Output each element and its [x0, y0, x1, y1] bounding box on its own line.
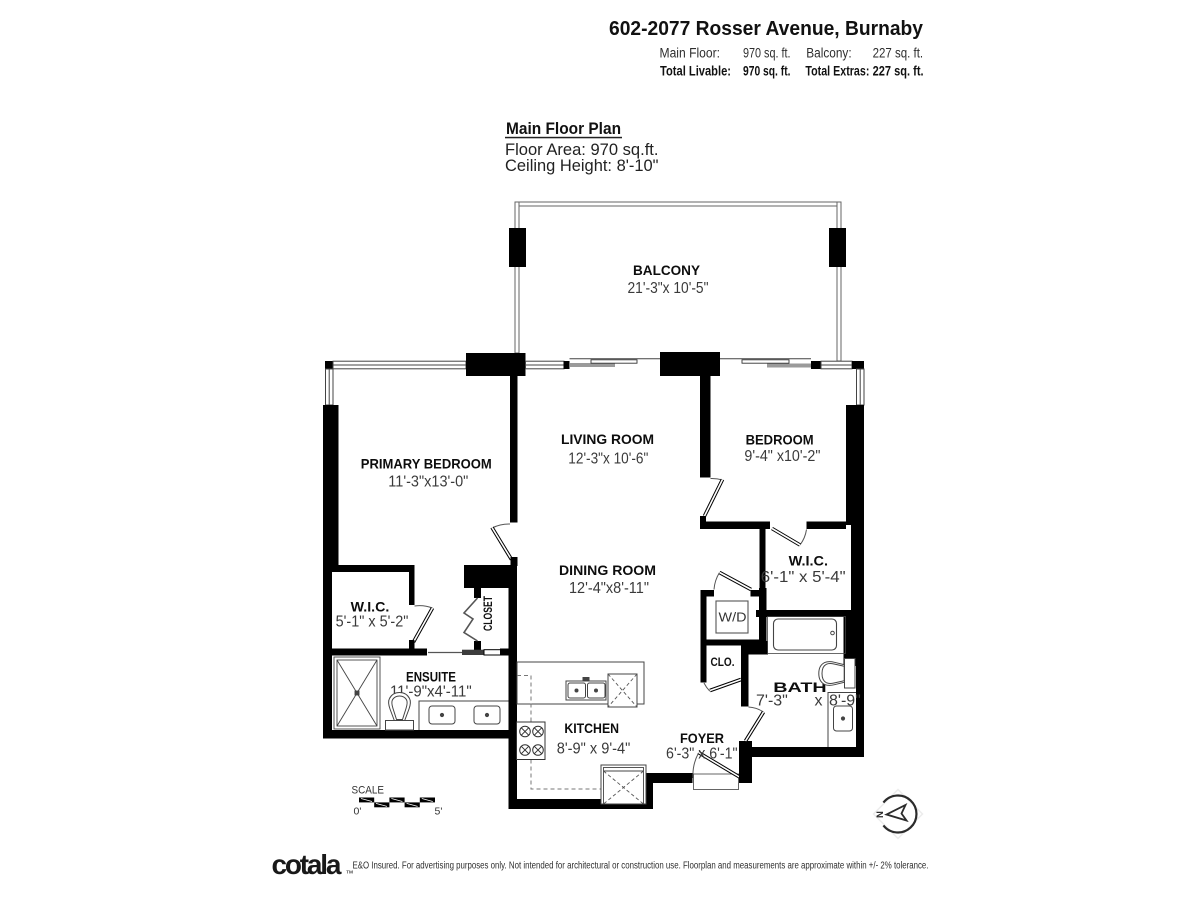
svg-text:8'-9" x 9'-4": 8'-9" x 9'-4": [557, 740, 631, 757]
svg-text:E&O Insured. For advertising p: E&O Insured. For advertising purposes on…: [353, 861, 929, 872]
svg-text:cotala: cotala: [272, 849, 342, 880]
svg-text:Total Livable:: Total Livable:: [660, 64, 731, 79]
svg-text:CLO.: CLO.: [711, 657, 735, 669]
svg-text:LIVING ROOM: LIVING ROOM: [561, 431, 654, 447]
svg-text:Main Floor:: Main Floor:: [660, 46, 721, 61]
svg-text:5': 5': [435, 806, 443, 818]
svg-text:6'-3" x 6'-1": 6'-3" x 6'-1": [666, 745, 738, 762]
svg-text:Balcony:: Balcony:: [806, 46, 851, 61]
svg-text:6'-1" x 5'-4": 6'-1" x 5'-4": [761, 569, 846, 586]
svg-text:227 sq. ft.: 227 sq. ft.: [873, 64, 924, 79]
svg-text:ENSUITE: ENSUITE: [406, 669, 456, 685]
svg-text:Ceiling Height: 8'-10": Ceiling Height: 8'-10": [505, 157, 659, 175]
svg-text:W.I.C.: W.I.C.: [789, 552, 828, 568]
svg-text:970 sq. ft.: 970 sq. ft.: [743, 64, 791, 79]
svg-text:21'-3"x 10'-5": 21'-3"x 10'-5": [628, 280, 709, 297]
svg-text:W.I.C.: W.I.C.: [351, 599, 390, 615]
svg-text:KITCHEN: KITCHEN: [564, 720, 619, 736]
svg-text:FOYER: FOYER: [680, 730, 724, 746]
svg-text:PRIMARY BEDROOM: PRIMARY BEDROOM: [361, 455, 492, 471]
svg-text:11'-3"x13'-0": 11'-3"x13'-0": [388, 474, 468, 491]
svg-text:DINING ROOM: DINING ROOM: [559, 562, 656, 578]
svg-text:12'-4"x8'-11": 12'-4"x8'-11": [569, 580, 649, 597]
svg-text:970 sq. ft.: 970 sq. ft.: [743, 46, 791, 61]
svg-text:5'-1" x 5'-2": 5'-1" x 5'-2": [336, 614, 409, 631]
svg-text:12'-3"x 10'-6": 12'-3"x 10'-6": [568, 450, 648, 467]
svg-text:CLOSET: CLOSET: [483, 596, 495, 631]
svg-text:602-2077 Rosser Avenue, Burnab: 602-2077 Rosser Avenue, Burnaby: [609, 17, 924, 40]
svg-text:Main Floor Plan: Main Floor Plan: [506, 119, 621, 138]
svg-text:BALCONY: BALCONY: [633, 262, 701, 278]
svg-text:Total Extras:: Total Extras:: [805, 64, 869, 79]
svg-text:9'-4" x10'-2": 9'-4" x10'-2": [744, 448, 820, 465]
svg-text:SCALE: SCALE: [352, 785, 385, 797]
svg-text:W/D: W/D: [719, 610, 747, 624]
svg-text:BEDROOM: BEDROOM: [746, 431, 814, 447]
svg-text:0': 0': [354, 806, 362, 818]
svg-text:N: N: [875, 811, 886, 818]
svg-text:227 sq. ft.: 227 sq. ft.: [873, 46, 924, 61]
svg-text:7'-3": 7'-3": [756, 692, 788, 709]
svg-text:x: x: [815, 692, 823, 709]
